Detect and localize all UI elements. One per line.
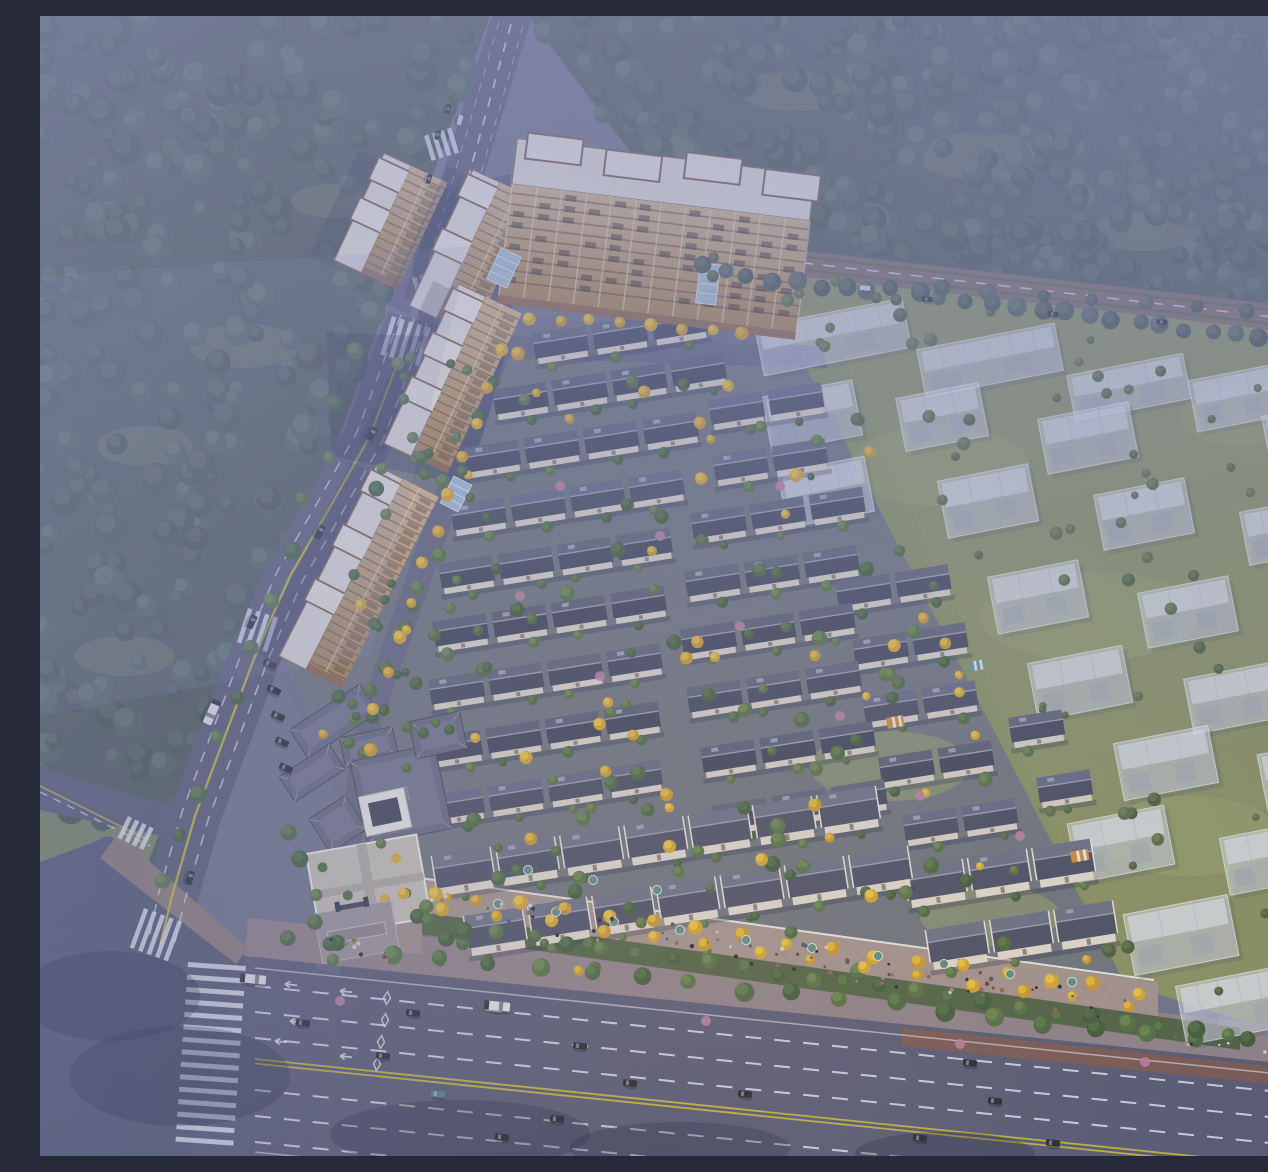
warm-glow (40, 16, 1268, 1156)
aerial-masterplan-render: Aerial dusk rendering of a residential m… (40, 16, 1268, 1156)
atmosphere-haze (40, 16, 1268, 1156)
scene-canvas (40, 16, 1268, 1156)
